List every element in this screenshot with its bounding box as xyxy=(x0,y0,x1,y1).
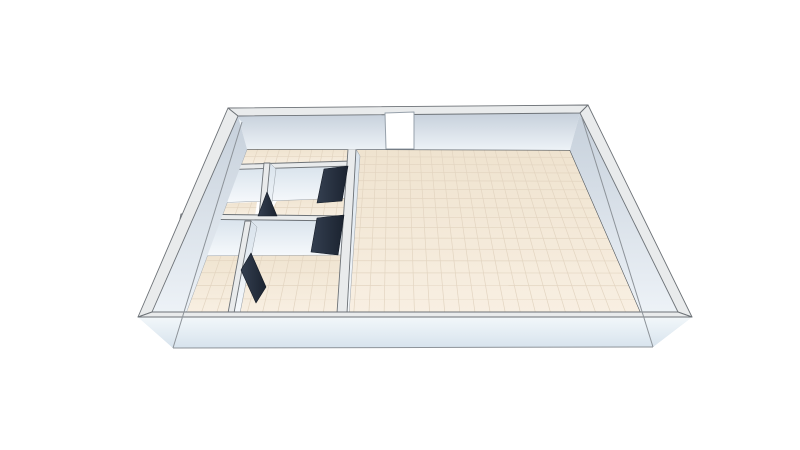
wall-front-crest xyxy=(138,312,692,317)
floorplan-stage xyxy=(0,0,800,450)
wall-front[interactable] xyxy=(138,312,692,348)
wall-front-outer-face xyxy=(138,317,692,348)
door-opening-back-wall[interactable] xyxy=(385,112,414,149)
floorplan-canvas[interactable] xyxy=(0,0,800,450)
wall-back[interactable] xyxy=(228,105,588,150)
